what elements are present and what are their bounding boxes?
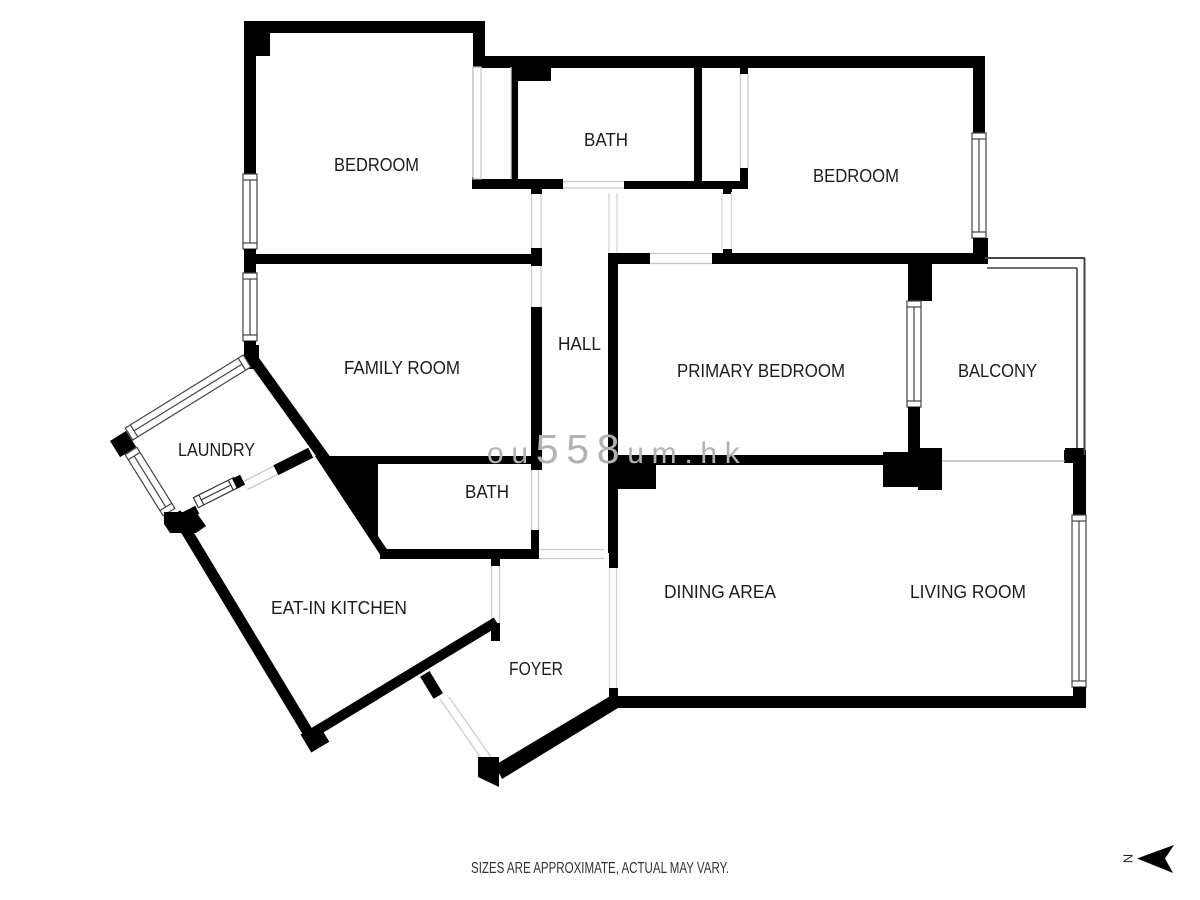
svg-text:LAUNDRY: LAUNDRY (178, 440, 255, 460)
svg-text:BATH: BATH (465, 482, 509, 502)
svg-text:ou558um.hk: ou558um.hk (487, 426, 748, 472)
svg-text:BALCONY: BALCONY (958, 361, 1037, 381)
svg-text:FOYER: FOYER (509, 659, 563, 679)
svg-text:SIZES ARE APPROXIMATE, ACTUAL: SIZES ARE APPROXIMATE, ACTUAL MAY VARY. (471, 860, 729, 877)
svg-text:PRIMARY BEDROOM: PRIMARY BEDROOM (677, 361, 845, 381)
svg-text:DINING AREA: DINING AREA (664, 582, 776, 602)
svg-text:BEDROOM: BEDROOM (334, 155, 419, 175)
svg-text:BATH: BATH (584, 130, 628, 150)
svg-text:EAT-IN KITCHEN: EAT-IN KITCHEN (271, 598, 407, 618)
svg-text:FAMILY ROOM: FAMILY ROOM (344, 358, 460, 378)
svg-text:LIVING ROOM: LIVING ROOM (910, 582, 1026, 602)
svg-text:BEDROOM: BEDROOM (813, 166, 899, 186)
svg-text:HALL: HALL (558, 334, 601, 354)
svg-text:N: N (1121, 854, 1136, 863)
